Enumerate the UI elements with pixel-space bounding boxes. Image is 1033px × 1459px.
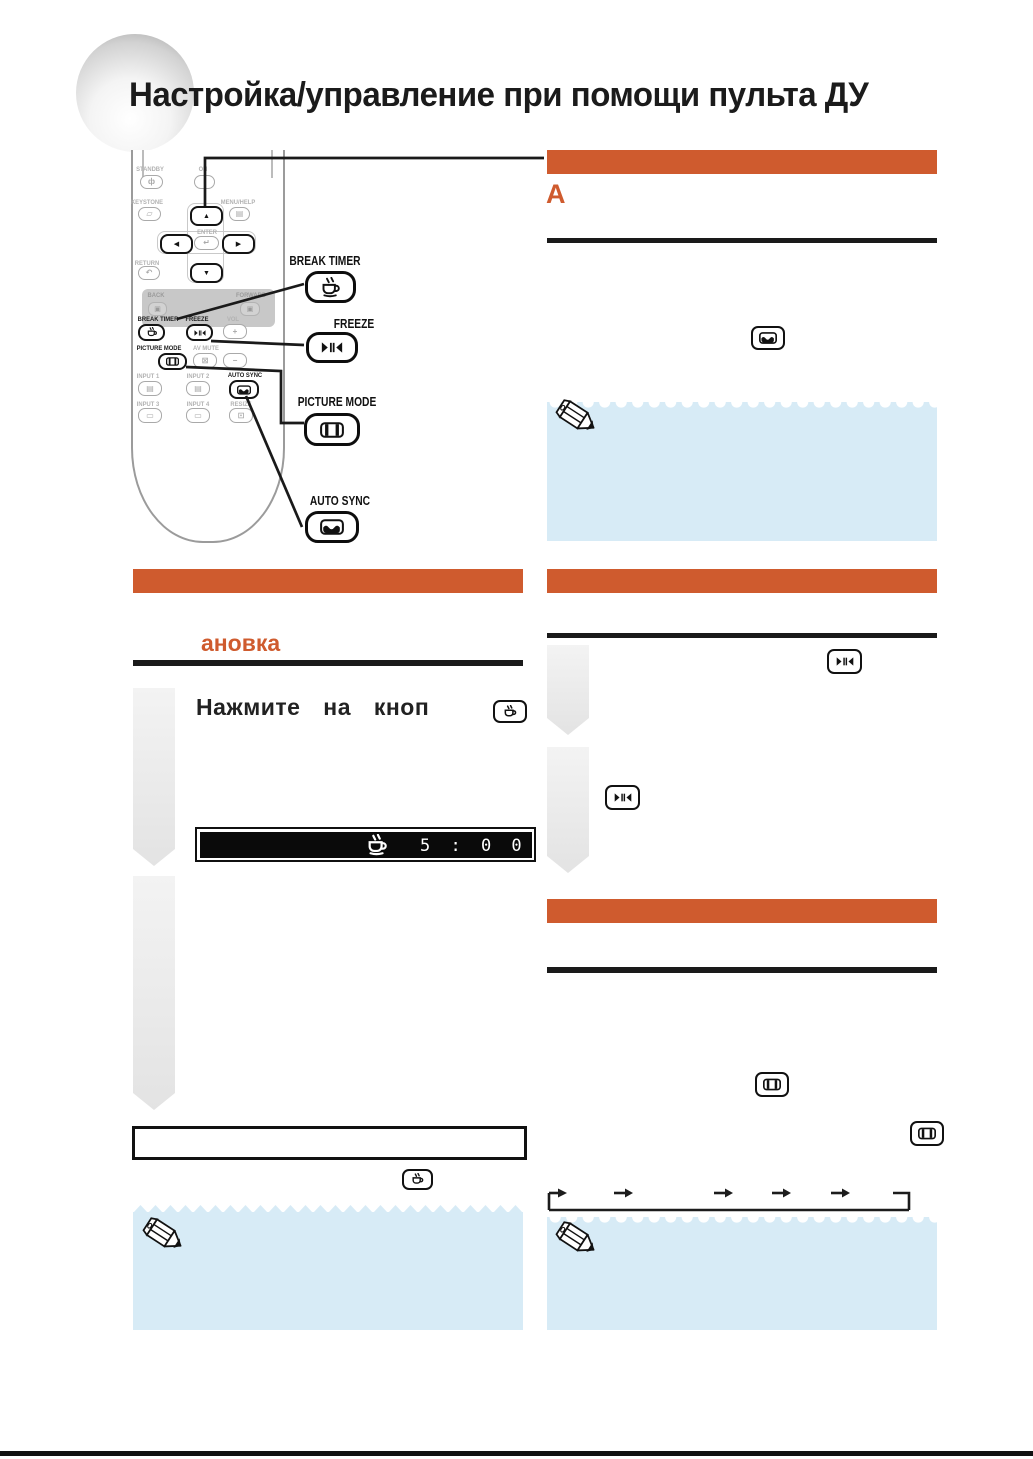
page-title: Настройка/управление при помощи пульта Д… bbox=[129, 76, 868, 115]
callout-lines bbox=[0, 0, 1033, 1459]
manual-page: Настройка/управление при помощи пульта Д… bbox=[0, 0, 1033, 1459]
